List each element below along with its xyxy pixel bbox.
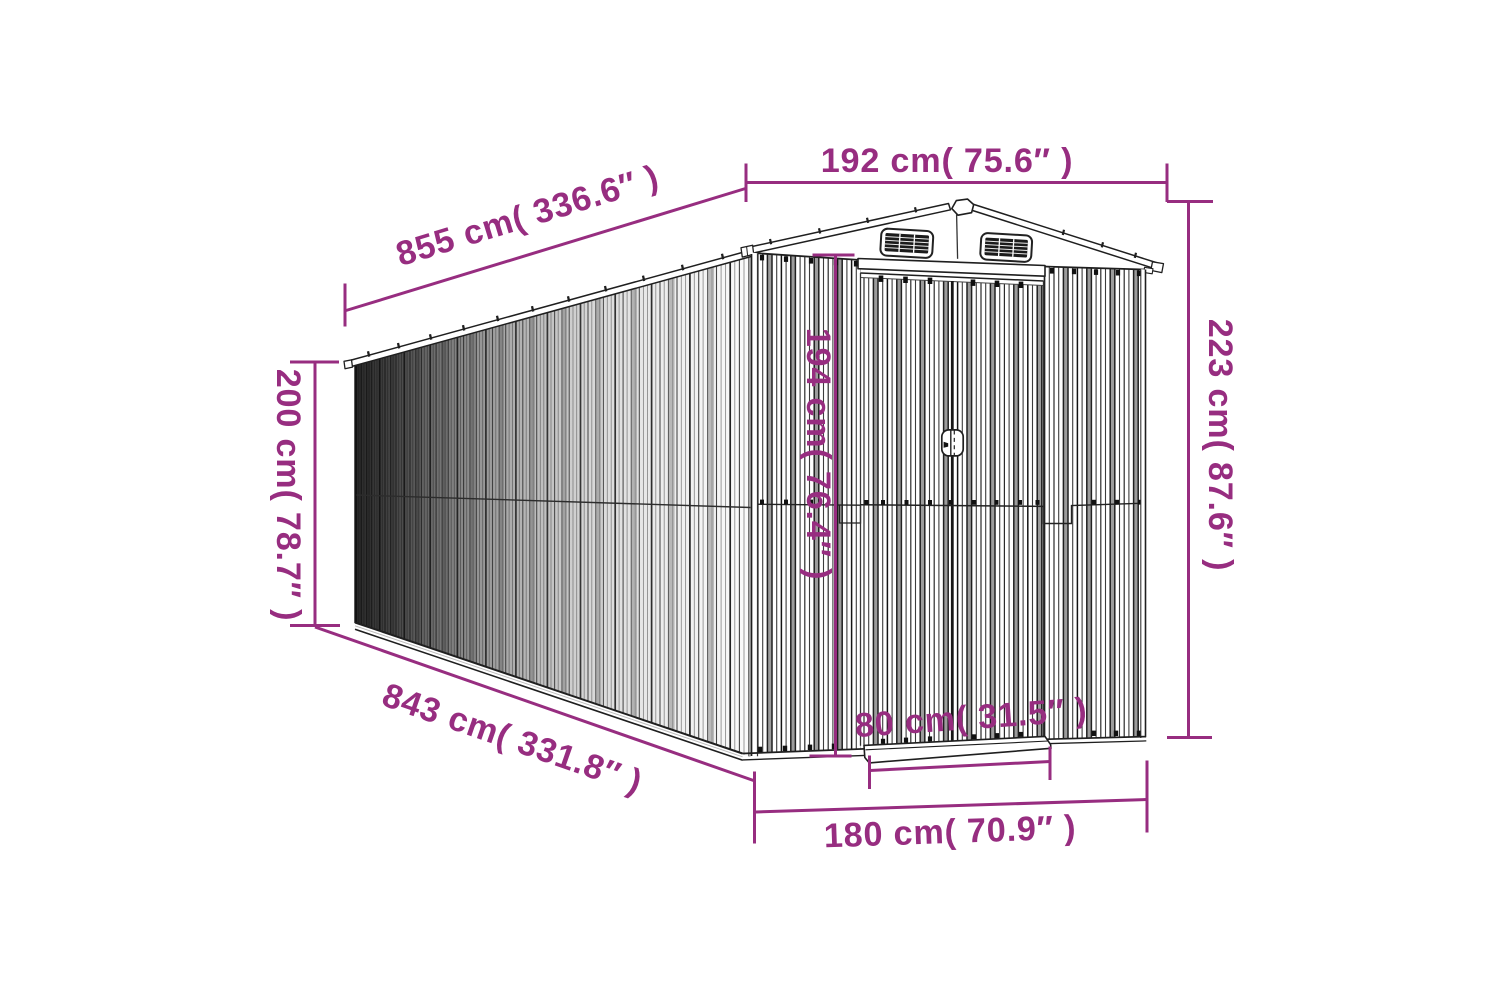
svg-text:194 cm( 76.4″ ): 194 cm( 76.4″ ) (799, 328, 837, 581)
svg-text:223 cm( 87.6″ ): 223 cm( 87.6″ ) (1201, 319, 1239, 572)
svg-text:192 cm( 75.6″ ): 192 cm( 75.6″ ) (821, 142, 1074, 180)
svg-text:200 cm( 78.7″ ): 200 cm( 78.7″ ) (269, 369, 307, 622)
